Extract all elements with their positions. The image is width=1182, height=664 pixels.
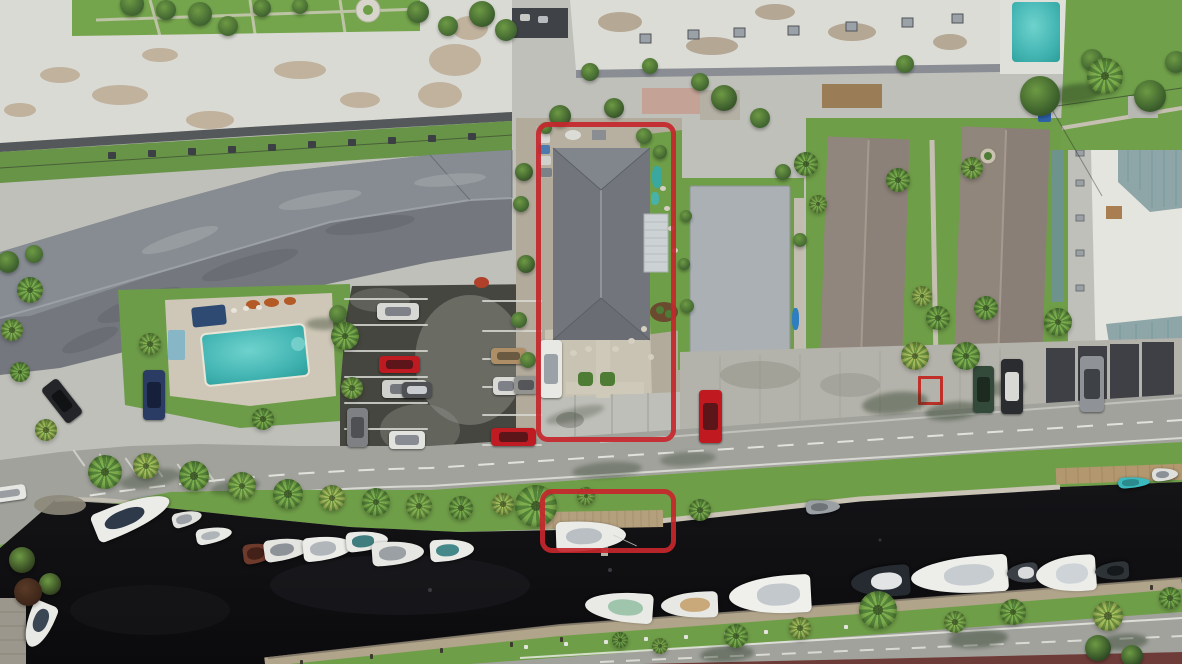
- tree: [469, 1, 495, 27]
- tree: [896, 55, 914, 73]
- palm-tree: [794, 152, 818, 176]
- property-outline-annotation: [536, 122, 676, 442]
- car-white: [377, 303, 419, 320]
- car-dark: [402, 382, 432, 398]
- palm-tree: [926, 306, 950, 330]
- palm-tree: [809, 195, 827, 213]
- ac-unit: [148, 150, 156, 157]
- carport-item: [520, 14, 530, 21]
- pool-mat: [168, 330, 185, 360]
- twin-brown-roof-buildings: [806, 118, 1084, 370]
- car-red-street: [699, 390, 722, 443]
- palm-tree: [1087, 58, 1123, 94]
- ac-unit: [388, 137, 396, 144]
- pool-furniture: [231, 308, 237, 313]
- palm-tree: [974, 296, 998, 320]
- palm-tree: [88, 455, 122, 489]
- palm-tree: [179, 461, 209, 491]
- tree: [513, 196, 529, 212]
- carport: [512, 8, 568, 38]
- tree: [515, 163, 533, 181]
- ac-unit: [348, 139, 356, 146]
- mangrove: [9, 547, 35, 573]
- parking-stripe: [344, 350, 428, 352]
- fence-post-white: [684, 635, 688, 639]
- fence-post-white: [524, 645, 528, 649]
- palm-tree: [406, 493, 432, 519]
- palm-tree: [362, 488, 390, 516]
- palm-tree: [273, 479, 303, 509]
- palm-tree: [724, 624, 748, 648]
- car-red: [379, 356, 420, 373]
- car-dark-green: [973, 366, 994, 413]
- ac-unit: [108, 152, 116, 159]
- palm-tree: [139, 333, 161, 355]
- dock-post: [1150, 585, 1153, 590]
- fence-post-white: [644, 637, 648, 641]
- palm-tree: [228, 472, 256, 500]
- tree: [1165, 51, 1182, 73]
- palm-tree: [912, 286, 932, 306]
- palm-tree: [859, 591, 897, 629]
- tree: [581, 63, 599, 81]
- ac-unit: [268, 144, 276, 151]
- tree: [511, 312, 527, 328]
- parking-stripe: [482, 414, 542, 416]
- flower-shrub: [264, 298, 279, 307]
- blue-kayak: [792, 308, 799, 330]
- palm-tree: [252, 408, 274, 430]
- red-shrub: [474, 277, 489, 288]
- ac-unit: [228, 146, 236, 153]
- dock-post: [370, 654, 373, 659]
- swimming-pool: [201, 324, 310, 387]
- tree: [188, 2, 212, 26]
- tree: [678, 258, 690, 270]
- aerial-photo: [0, 0, 1182, 664]
- fence-post-white: [604, 640, 608, 644]
- palm-tree: [961, 157, 983, 179]
- ac-unit: [468, 133, 476, 140]
- carport-item: [538, 16, 548, 23]
- dock-post: [510, 642, 513, 647]
- palm-tree: [492, 493, 514, 515]
- palm-tree: [901, 342, 929, 370]
- tree: [1121, 645, 1143, 664]
- car-red: [491, 428, 536, 446]
- palm-tree: [341, 377, 363, 399]
- tree: [495, 19, 517, 41]
- palm-tree: [1044, 308, 1072, 336]
- tree: [680, 299, 694, 313]
- palm-tree: [886, 168, 910, 192]
- pink-awning: [642, 88, 700, 114]
- flat-roof-building: [678, 178, 804, 370]
- pool-furniture: [243, 306, 249, 311]
- tree: [680, 210, 692, 222]
- ac-unit: [188, 148, 196, 155]
- palm-tree: [449, 496, 473, 520]
- palm-tree: [1159, 587, 1181, 609]
- car-blue-suv: [143, 370, 165, 420]
- mangrove: [39, 573, 61, 595]
- tree: [438, 16, 458, 36]
- fence-post-white: [564, 642, 568, 646]
- tree: [711, 85, 737, 111]
- tree: [520, 352, 536, 368]
- parking-stripe: [344, 298, 428, 300]
- dock-boat-outline-annotation: [540, 489, 676, 553]
- parking-stripe: [482, 300, 542, 302]
- tree: [1020, 76, 1060, 116]
- car-gray: [514, 376, 538, 394]
- palm-tree: [133, 453, 159, 479]
- palm-tree: [17, 277, 43, 303]
- chimney: [1106, 206, 1122, 219]
- tree: [775, 164, 791, 180]
- palm-tree: [952, 342, 980, 370]
- tree: [793, 233, 807, 247]
- tree: [329, 305, 347, 323]
- parking-stripe: [344, 324, 428, 326]
- flower-shrub: [284, 297, 296, 305]
- wood-pergola: [822, 84, 882, 108]
- palm-tree: [35, 419, 57, 441]
- tree: [604, 98, 624, 118]
- palm-tree: [789, 617, 811, 639]
- truck-gray-pickup: [1080, 356, 1104, 412]
- palm-tree: [944, 611, 966, 633]
- truck-black-white-cab: [1001, 359, 1023, 414]
- dock-post: [560, 637, 563, 642]
- palm-tree: [1000, 599, 1026, 625]
- dock-post: [300, 660, 303, 664]
- brown-canopy: [14, 578, 42, 606]
- tree: [750, 108, 770, 128]
- tree: [1085, 635, 1111, 661]
- palm-tree: [652, 638, 668, 654]
- palm-tree: [1, 319, 23, 341]
- tree: [517, 255, 535, 273]
- palm-tree: [319, 485, 345, 511]
- neighbor-pool: [1012, 2, 1060, 62]
- pool-shade-canopy: [191, 304, 227, 327]
- tree: [1134, 80, 1166, 112]
- tree: [156, 0, 176, 20]
- tree: [25, 245, 43, 263]
- parking-stripe: [482, 330, 542, 332]
- ac-unit: [308, 141, 316, 148]
- fence-post-white: [844, 625, 848, 629]
- palm-tree: [1093, 601, 1123, 631]
- palm-tree: [612, 632, 628, 648]
- car-white: [389, 431, 425, 449]
- palm-tree: [689, 499, 711, 521]
- pool-furniture: [256, 305, 262, 310]
- parking-stripe: [344, 402, 428, 404]
- fence-post-white: [764, 630, 768, 634]
- lap-pool-strip: [1052, 150, 1064, 302]
- palm-tree: [331, 322, 359, 350]
- tree: [642, 58, 658, 74]
- palm-tree: [10, 362, 30, 382]
- car-gray: [347, 408, 368, 447]
- tree: [691, 73, 709, 91]
- ac-unit: [428, 135, 436, 142]
- tree: [407, 1, 429, 23]
- dock-post: [440, 648, 443, 653]
- tree: [218, 16, 238, 36]
